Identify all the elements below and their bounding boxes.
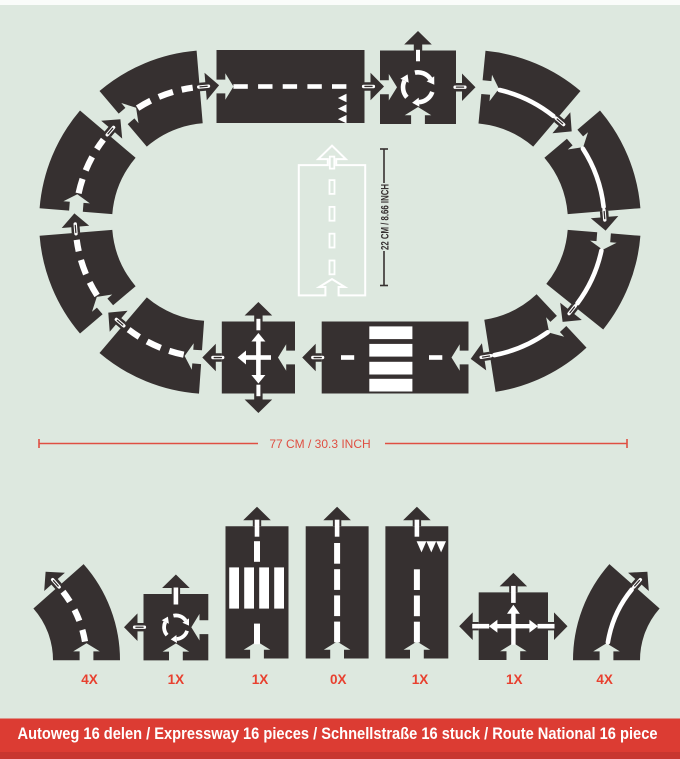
svg-text:1X: 1X	[252, 672, 269, 687]
svg-text:1X: 1X	[168, 672, 185, 687]
svg-text:Autoweg 16 delen / Expressway: Autoweg 16 delen / Expressway 16 pieces …	[18, 725, 658, 743]
svg-text:22 CM / 8.66 INCH: 22 CM / 8.66 INCH	[380, 184, 392, 250]
svg-text:1X: 1X	[412, 672, 429, 687]
svg-text:77 CM / 30.3 INCH: 77 CM / 30.3 INCH	[269, 437, 370, 451]
svg-text:4X: 4X	[81, 672, 98, 687]
svg-text:1X: 1X	[506, 672, 523, 687]
svg-text:4X: 4X	[596, 672, 613, 687]
svg-text:0X: 0X	[330, 672, 347, 687]
